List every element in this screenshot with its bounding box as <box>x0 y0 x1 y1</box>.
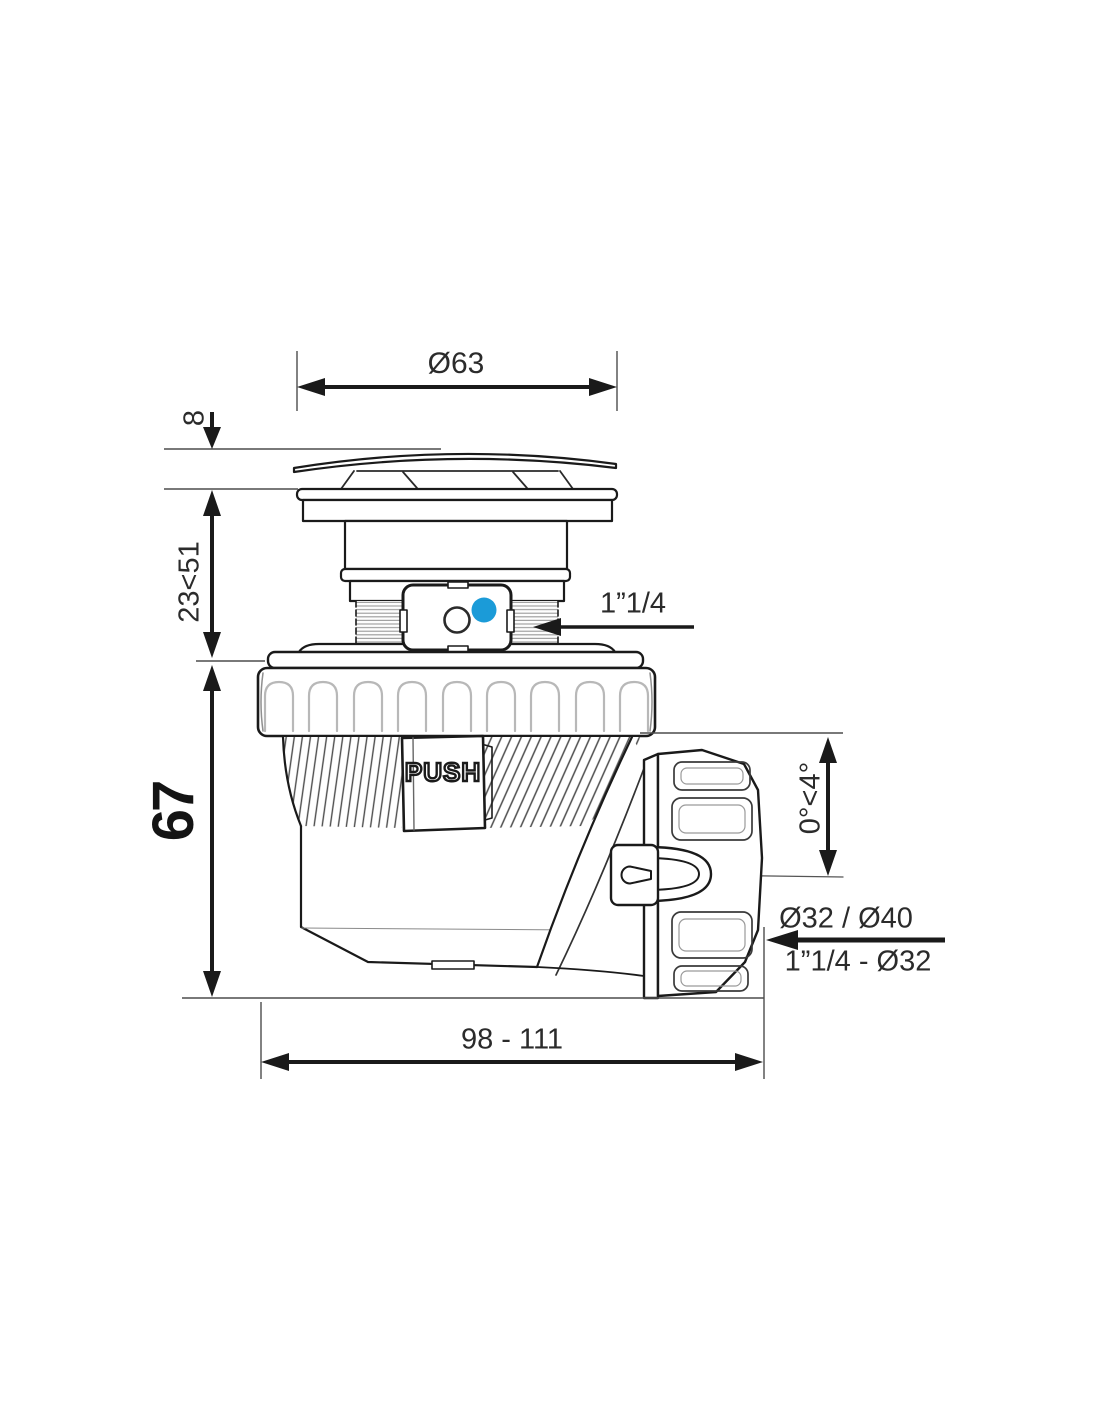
indicator-dot-white <box>445 608 470 633</box>
locknut-ring <box>258 668 655 736</box>
cap-flange-lip <box>297 489 617 500</box>
dim-label-top-diameter: Ø63 <box>428 349 485 379</box>
dim-label-overall-length: 98 - 111 <box>461 1026 563 1055</box>
seal-ring <box>341 569 570 581</box>
dim-label-body-height: 67 <box>145 783 203 842</box>
clamp-box <box>400 582 514 652</box>
dim-label-adjustable-height: 23<51 <box>176 541 205 622</box>
dim-label-angle-range: 0°<4° <box>797 762 826 834</box>
wall-bracket <box>611 845 658 905</box>
dim-adjust-height-arrow <box>203 490 221 658</box>
dim-length-arrow <box>261 1053 763 1071</box>
dim-inlet-thread-arrow <box>533 618 694 636</box>
dim-top-diameter-arrow <box>297 378 617 396</box>
technical-drawing-page: Ø63 8 23<51 67 1”1/4 PUSH 0°<4° Ø32 / Ø4… <box>0 0 1100 1422</box>
push-button-label: PUSH <box>405 759 481 785</box>
clamp-notch-right <box>507 610 514 632</box>
keyhole-slot <box>622 867 652 884</box>
drain-cap <box>294 454 616 489</box>
dim-label-outlet-thread: 1”1/4 - Ø32 <box>785 948 932 977</box>
drain-trap-line-art <box>0 0 1100 1422</box>
cap-underside <box>341 471 573 489</box>
body-cylinder <box>345 521 567 569</box>
trap-bottom-tab <box>432 961 474 969</box>
dim-label-outlet-diameters: Ø32 / Ø40 <box>779 905 913 934</box>
trap-body <box>301 818 578 969</box>
dim-label-cap-height: 8 <box>181 410 210 426</box>
trap-top-plate <box>268 652 643 668</box>
indicator-dot-blue <box>472 598 497 623</box>
cap-flange <box>303 500 612 521</box>
dim-label-inlet-thread: 1”1/4 <box>600 590 666 619</box>
clamp-notch-top <box>448 582 468 588</box>
clamp-notch-left <box>400 610 407 632</box>
